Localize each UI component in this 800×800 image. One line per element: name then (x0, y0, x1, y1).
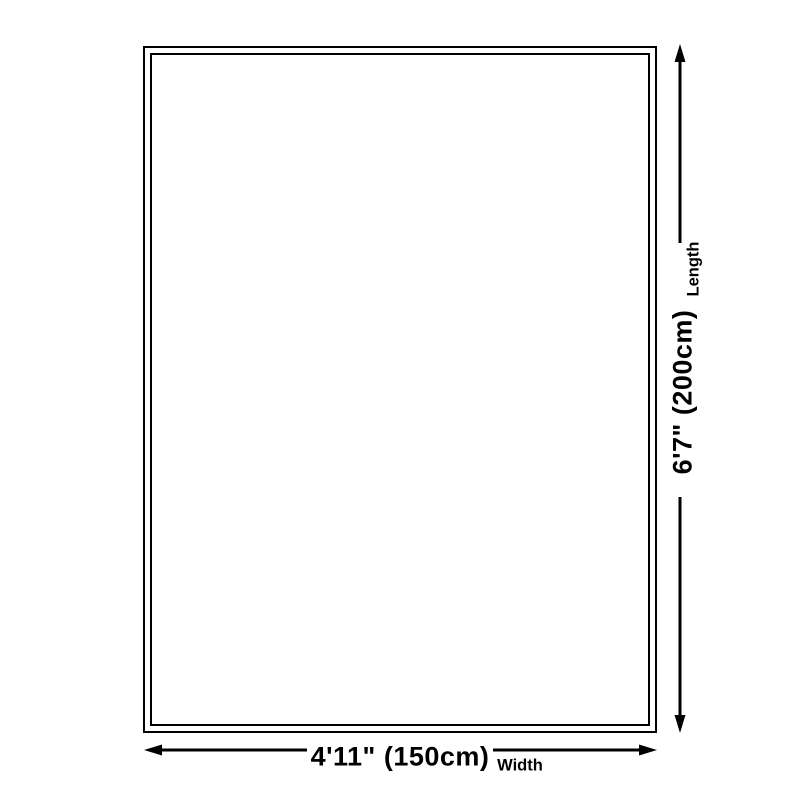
width-dimension-label: Width (497, 757, 543, 776)
arrowhead-right-icon (639, 745, 657, 756)
dimension-diagram: 4'11" (150cm) Width 6'7" (200cm) Length (0, 0, 800, 800)
arrowhead-up-icon (675, 44, 686, 62)
width-dimension-value: 4'11" (150cm) (311, 742, 490, 773)
arrowhead-left-icon (144, 745, 162, 756)
arrowhead-down-icon (675, 715, 686, 733)
length-dimension-value: 6'7" (200cm) (668, 310, 699, 475)
length-dimension-label: Length (685, 242, 704, 297)
